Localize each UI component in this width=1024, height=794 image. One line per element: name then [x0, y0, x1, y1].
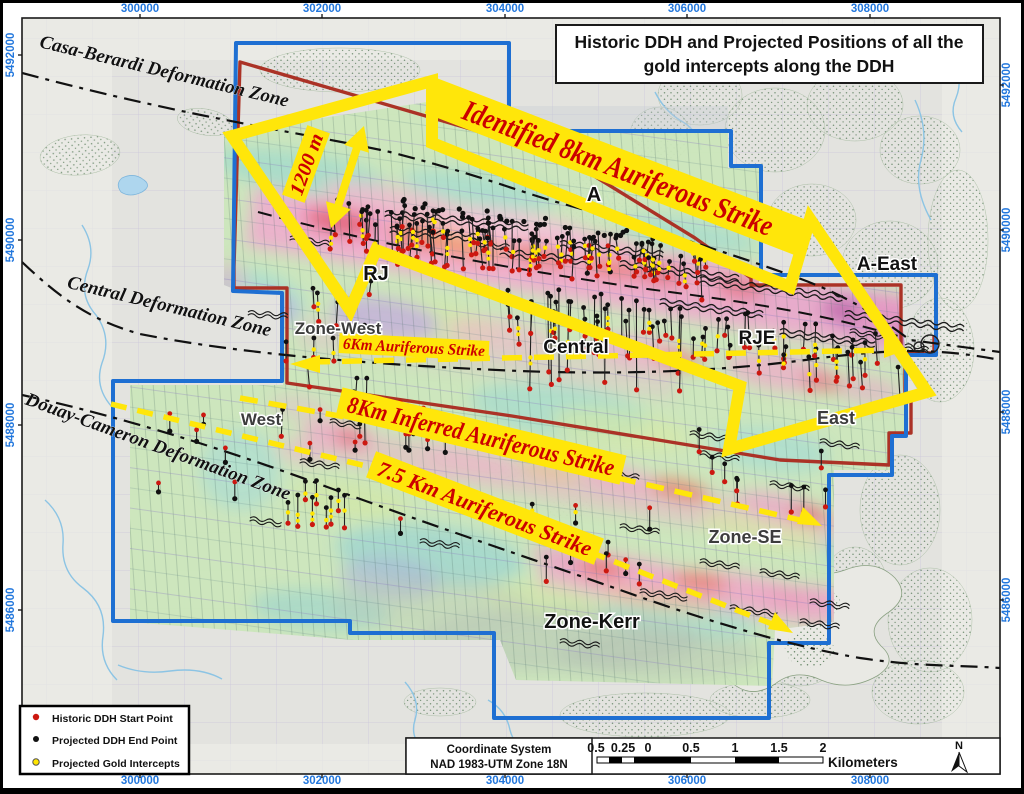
svg-text:West: West: [241, 410, 282, 429]
svg-text:Historic DDH and Projected Pos: Historic DDH and Projected Positions of …: [575, 32, 964, 52]
svg-text:2: 2: [820, 741, 827, 755]
svg-text:RJE: RJE: [739, 328, 776, 349]
svg-text:308000: 308000: [851, 3, 889, 15]
svg-text:Kilometers: Kilometers: [828, 755, 898, 770]
svg-text:Projected DDH End Point: Projected DDH End Point: [52, 735, 178, 747]
svg-text:A-East: A-East: [857, 254, 918, 275]
svg-text:NAD 1983-UTM Zone 18N: NAD 1983-UTM Zone 18N: [430, 759, 567, 771]
svg-text:5490000: 5490000: [5, 218, 17, 263]
svg-text:East: East: [817, 408, 855, 428]
svg-text:RJ: RJ: [363, 263, 389, 285]
svg-text:0: 0: [645, 741, 652, 755]
svg-text:Coordinate System: Coordinate System: [447, 744, 552, 756]
svg-text:Zone-SE: Zone-SE: [708, 527, 781, 547]
svg-text:A: A: [587, 184, 601, 206]
svg-text:300000: 300000: [121, 3, 159, 15]
svg-text:Zone-West: Zone-West: [295, 319, 382, 338]
svg-text:5488000: 5488000: [5, 403, 17, 448]
svg-text:Projected Gold Intercepts: Projected Gold Intercepts: [52, 758, 180, 770]
svg-text:302000: 302000: [303, 3, 341, 15]
svg-text:0.5: 0.5: [587, 741, 604, 755]
svg-text:gold intercepts along the DDH: gold intercepts along the DDH: [644, 56, 895, 76]
svg-text:0.5: 0.5: [682, 741, 699, 755]
svg-text:Historic DDH Start Point: Historic DDH Start Point: [52, 713, 173, 725]
svg-text:0.25: 0.25: [611, 741, 635, 755]
svg-text:306000: 306000: [668, 3, 706, 15]
svg-text:N: N: [955, 740, 963, 752]
svg-text:Central: Central: [543, 337, 608, 358]
svg-text:1: 1: [732, 741, 739, 755]
svg-text:1.5: 1.5: [770, 741, 787, 755]
svg-text:5486000: 5486000: [5, 588, 17, 633]
svg-text:304000: 304000: [486, 3, 524, 15]
svg-text:Zone-Kerr: Zone-Kerr: [544, 611, 640, 633]
svg-text:5492000: 5492000: [5, 33, 17, 78]
